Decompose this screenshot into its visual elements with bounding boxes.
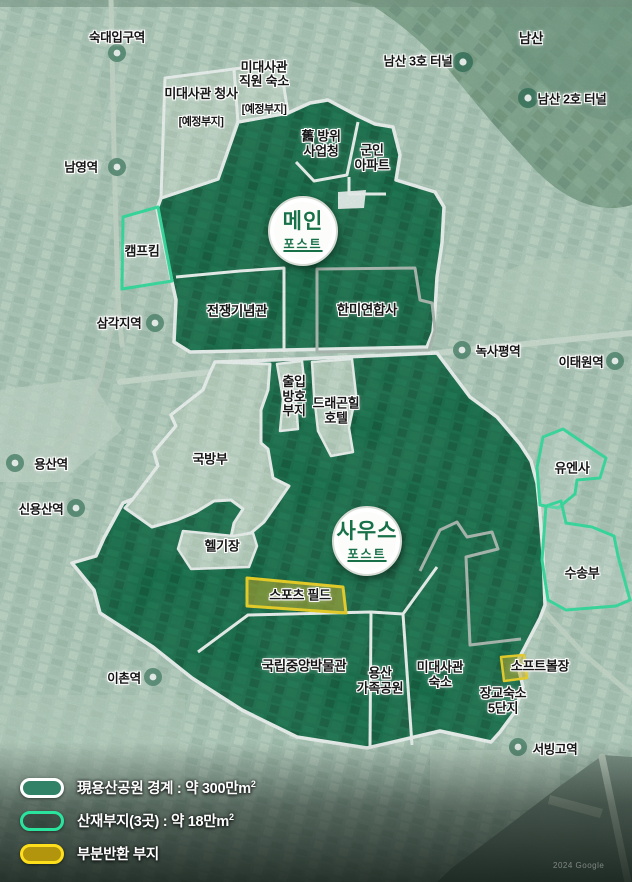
legend-row-scattered-sites: 산재부지(3곳) : 약 18만m2 — [20, 810, 256, 831]
legend-row-partial-return: 부분반환 부지 — [20, 843, 256, 864]
legend-label-scattered-sites: 산재부지(3곳) : 약 18만m — [77, 814, 229, 830]
legend-sup-park-boundary: 2 — [251, 779, 256, 789]
legend-swatch-partial-return — [20, 844, 64, 864]
legend-sup-scattered-sites: 2 — [229, 812, 234, 822]
map-canvas — [0, 0, 632, 882]
south-post-title: 사우스 — [337, 521, 398, 542]
legend-swatch-park-boundary — [20, 778, 64, 798]
main-post-subtitle: 포스트 — [283, 235, 322, 252]
map-infographic: 미대사관 청사 [예정부지] 미대사관 직원 숙소 [예정부지] 舊 방위 사업… — [0, 0, 632, 882]
legend: 現용산공원 경계 : 약 300만m2 산재부지(3곳) : 약 18만m2 부… — [20, 777, 256, 864]
south-post-badge: 사우스 포스트 — [332, 506, 402, 576]
legend-label-partial-return: 부분반환 부지 — [77, 847, 159, 863]
legend-row-park-boundary: 現용산공원 경계 : 약 300만m2 — [20, 777, 256, 798]
noise-overlay-fine — [0, 0, 632, 882]
legend-swatch-scattered-sites — [20, 811, 64, 831]
south-post-subtitle: 포스트 — [347, 545, 386, 562]
legend-label-park-boundary: 現용산공원 경계 : 약 300만m — [77, 781, 251, 797]
main-post-badge: 메인 포스트 — [268, 196, 338, 266]
main-post-title: 메인 — [283, 211, 324, 232]
